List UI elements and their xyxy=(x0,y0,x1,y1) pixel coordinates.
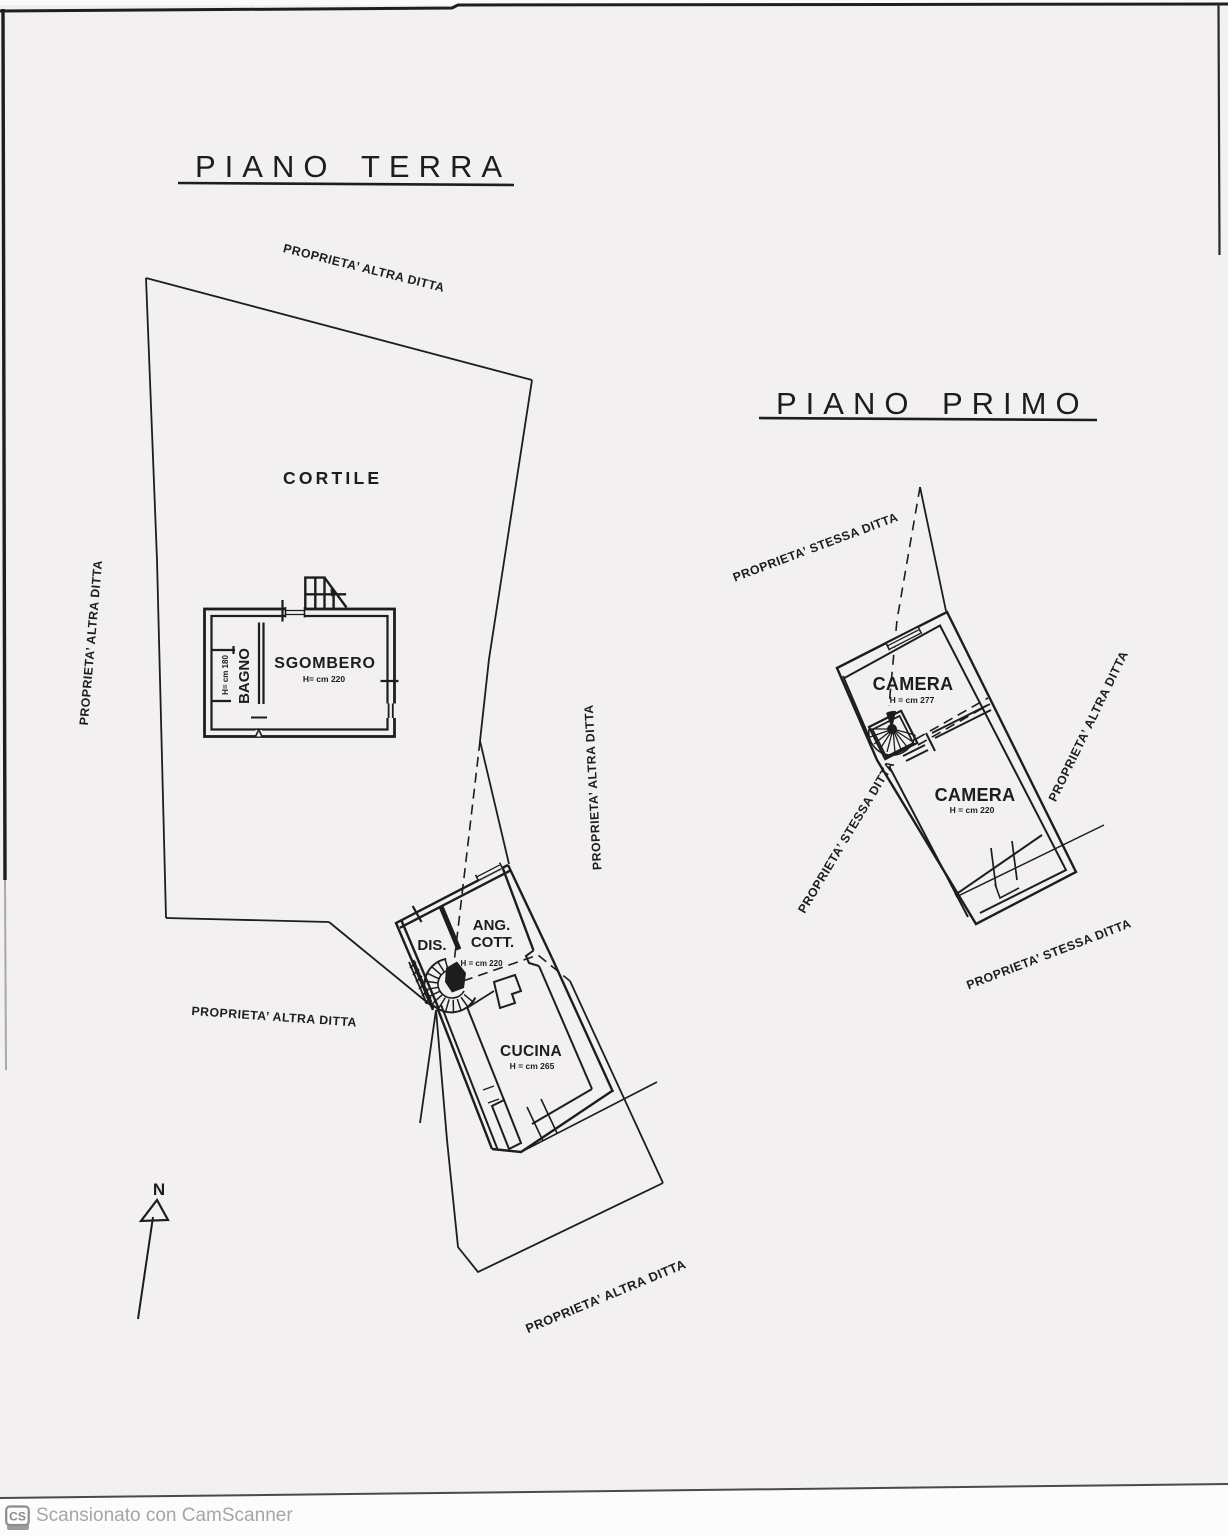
svg-text:H = cm 220: H = cm 220 xyxy=(460,959,503,968)
svg-text:CUCINA: CUCINA xyxy=(500,1043,562,1060)
svg-text:PIANO TERRA: PIANO TERRA xyxy=(195,149,511,184)
svg-text:H= cm 220: H= cm 220 xyxy=(303,674,346,684)
svg-text:DIS.: DIS. xyxy=(417,937,446,954)
svg-text:H = cm 220: H = cm 220 xyxy=(950,805,995,815)
svg-text:PIANO PRIMO: PIANO PRIMO xyxy=(776,386,1089,421)
svg-text:COTT.: COTT. xyxy=(471,934,514,951)
svg-text:Scansionato con CamScanner: Scansionato con CamScanner xyxy=(36,1505,293,1526)
svg-text:H= cm 180: H= cm 180 xyxy=(221,655,230,695)
svg-text:CAMERA: CAMERA xyxy=(935,785,1016,805)
svg-text:CAMERA: CAMERA xyxy=(873,674,954,694)
svg-text:ANG.: ANG. xyxy=(473,917,511,934)
svg-text:CS: CS xyxy=(9,1510,26,1524)
svg-text:CORTILE: CORTILE xyxy=(283,468,382,488)
svg-text:H = cm 265: H = cm 265 xyxy=(510,1061,555,1071)
svg-text:H = cm 277: H = cm 277 xyxy=(890,695,935,705)
svg-text:BAGNO: BAGNO xyxy=(236,648,253,704)
svg-text:N: N xyxy=(153,1180,165,1199)
svg-text:SGOMBERO: SGOMBERO xyxy=(274,655,376,672)
